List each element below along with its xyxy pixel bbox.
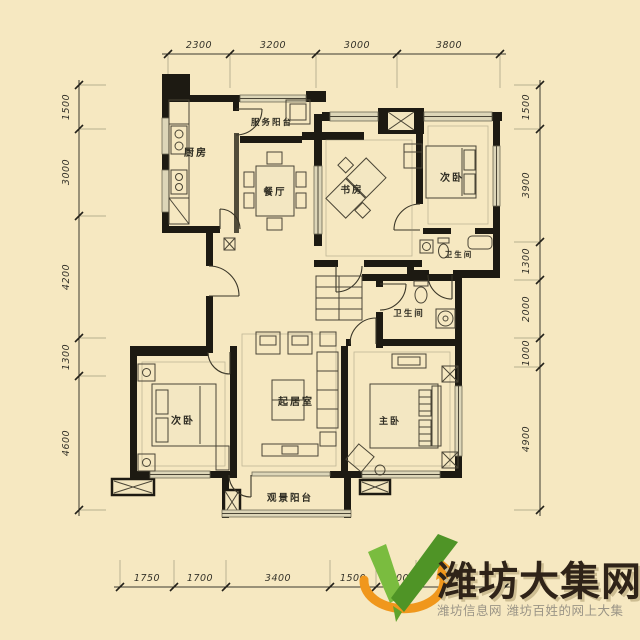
dim-right-2: 3900: [521, 172, 532, 198]
dim-top-2: 3200: [260, 40, 286, 51]
watermark-title: 潍坊大集网: [437, 559, 640, 605]
dim-top-3: 3000: [344, 40, 370, 51]
bedroom-top-furniture: [404, 144, 476, 198]
dimension-top: 2300 3200 3000 3800: [162, 40, 506, 88]
label-dining: 餐厅: [262, 186, 286, 198]
label-service-balcony: 服务阳台: [251, 117, 293, 128]
dim-bottom-2: 1700: [187, 573, 213, 584]
label-study: 书房: [340, 184, 363, 196]
dim-left-4: 1300: [61, 344, 72, 370]
kitchen-furniture: [169, 100, 189, 224]
dim-top-4: 3800: [436, 40, 462, 51]
label-bath-top: 卫生间: [445, 249, 474, 259]
dim-top-1: 2300: [186, 40, 212, 51]
dim-left-3: 4200: [61, 264, 72, 290]
floor-plan-svg: 2300 3200 3000 3800 1500 3000 4200 1300 …: [0, 0, 640, 640]
dim-bottom-1: 1750: [134, 573, 160, 584]
dim-left-2: 3000: [61, 159, 72, 185]
label-bedroom-left: 次卧: [171, 414, 195, 427]
dim-right-3: 1300: [521, 248, 532, 274]
entry-decor-item: [224, 238, 235, 250]
living-furniture: [256, 332, 338, 456]
dim-bottom-3: 3400: [265, 573, 291, 584]
hall-cabinet: [316, 276, 362, 320]
dimension-right: 1500 3900 1300 2000 1000 4900: [514, 80, 544, 516]
dim-right-4: 2000: [521, 296, 532, 322]
label-bedroom-top: 次卧: [440, 171, 464, 184]
bath-mid-fixtures: [414, 281, 455, 328]
label-living: 起居室: [277, 395, 314, 408]
dim-left-1: 1500: [61, 94, 72, 120]
dim-right-5: 1000: [521, 340, 532, 366]
watermark-tagline: 潍坊信息网 潍坊百姓的网上大集: [437, 603, 623, 618]
dim-right-1: 1500: [521, 94, 532, 120]
label-view-balcony: 观景阳台: [266, 492, 313, 504]
label-kitchen: 厨房: [184, 146, 208, 159]
dimension-left: 1500 3000 4200 1300 4600: [61, 80, 106, 516]
dim-right-6: 4900: [521, 426, 532, 452]
dim-left-5: 4600: [61, 430, 72, 456]
master-furniture: [346, 354, 458, 475]
label-bath-mid: 卫生间: [393, 308, 425, 319]
label-master: 主卧: [379, 415, 401, 427]
